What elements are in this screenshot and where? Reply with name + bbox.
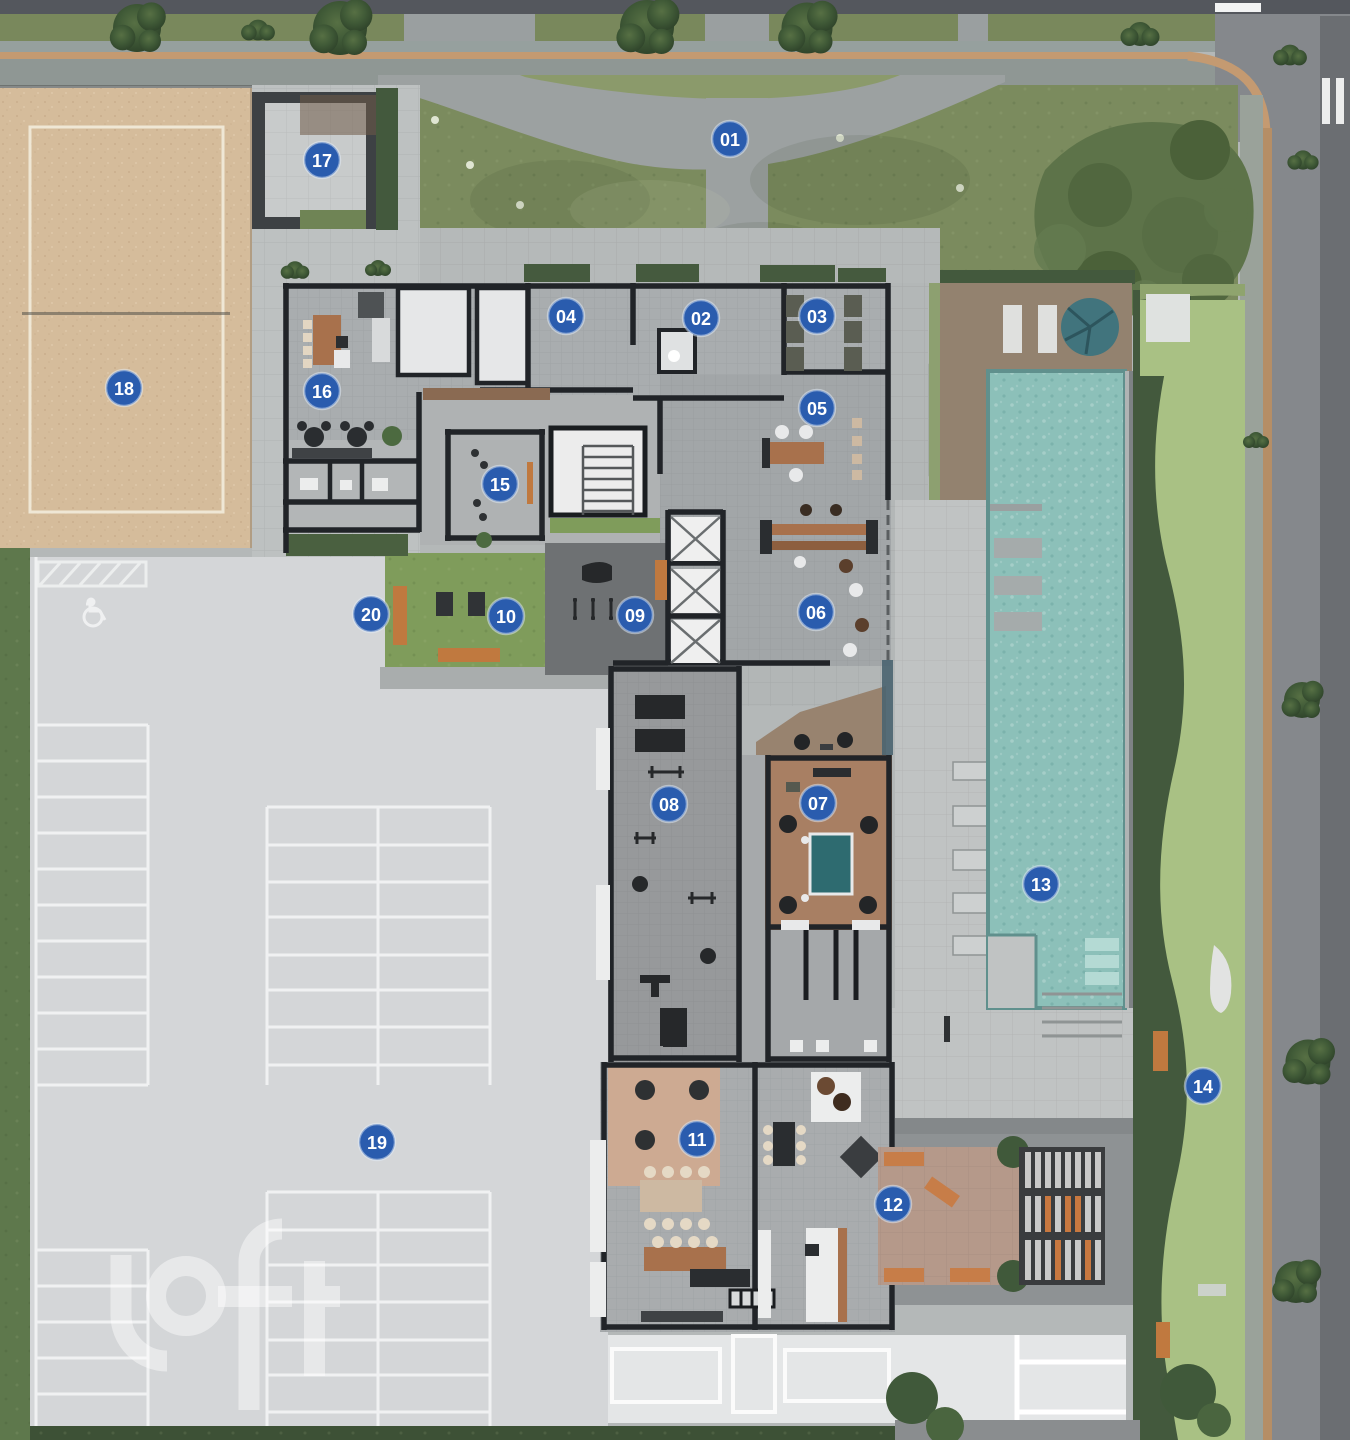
svg-text:14: 14 (1193, 1077, 1213, 1097)
svg-text:03: 03 (807, 307, 827, 327)
svg-text:12: 12 (883, 1195, 903, 1215)
svg-text:16: 16 (312, 382, 332, 402)
svg-text:05: 05 (807, 399, 827, 419)
svg-text:17: 17 (312, 151, 332, 171)
svg-text:11: 11 (687, 1130, 706, 1150)
svg-text:15: 15 (490, 475, 510, 495)
svg-text:10: 10 (496, 607, 516, 627)
svg-text:13: 13 (1031, 875, 1051, 895)
svg-text:04: 04 (556, 307, 576, 327)
svg-text:09: 09 (625, 606, 645, 626)
svg-text:07: 07 (808, 794, 828, 814)
svg-text:08: 08 (659, 795, 679, 815)
svg-text:19: 19 (367, 1133, 387, 1153)
svg-text:02: 02 (691, 309, 711, 329)
svg-text:01: 01 (720, 130, 740, 150)
svg-text:18: 18 (114, 379, 134, 399)
svg-text:20: 20 (361, 605, 381, 625)
svg-text:06: 06 (806, 603, 826, 623)
